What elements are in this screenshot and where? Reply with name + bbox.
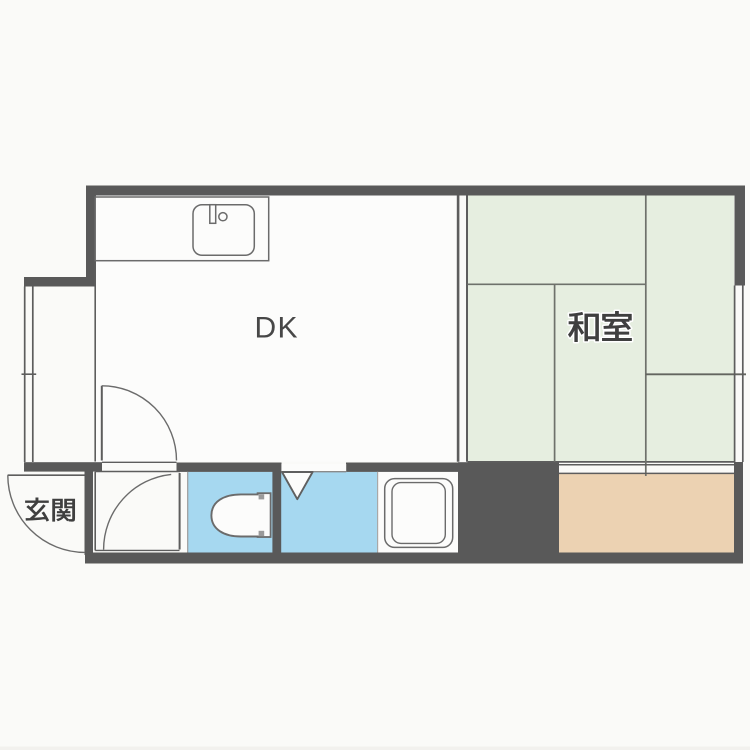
svg-text:DK: DK xyxy=(255,311,299,344)
